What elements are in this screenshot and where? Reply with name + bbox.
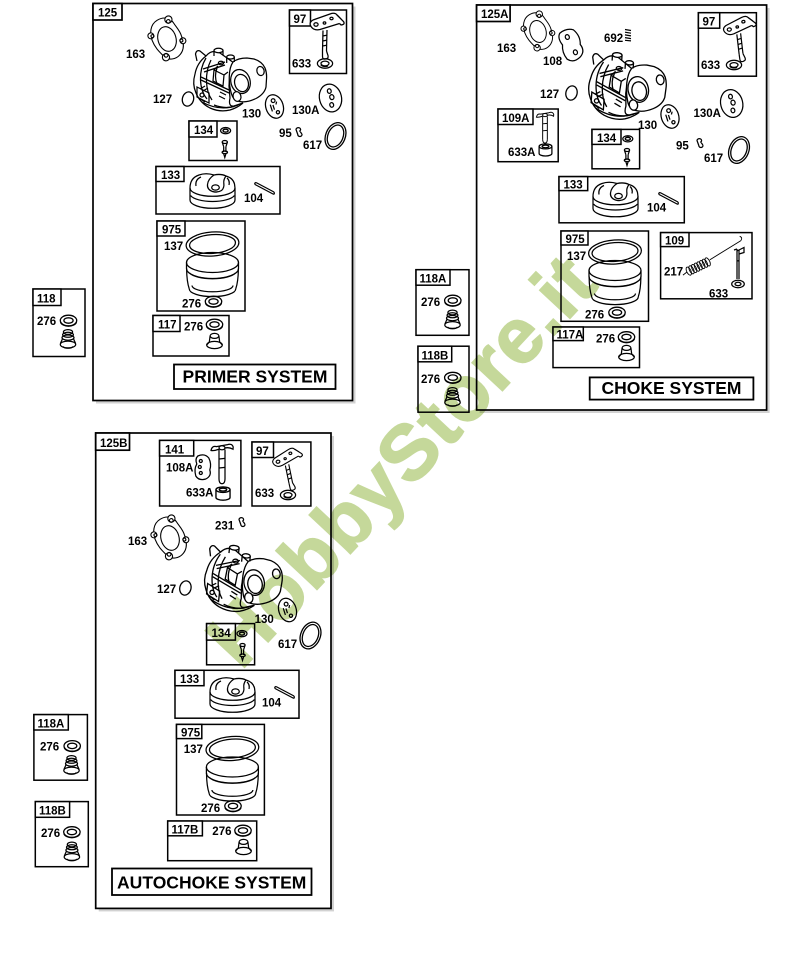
svg-text:276: 276: [596, 334, 615, 346]
svg-text:130: 130: [638, 120, 657, 132]
svg-text:276: 276: [37, 316, 56, 328]
svg-text:141: 141: [165, 444, 185, 456]
svg-text:276: 276: [212, 826, 231, 838]
svg-text:975: 975: [181, 727, 201, 739]
svg-text:633: 633: [709, 289, 728, 301]
svg-text:104: 104: [244, 193, 264, 205]
svg-text:117: 117: [158, 320, 177, 332]
svg-text:633: 633: [701, 60, 720, 72]
svg-text:118A: 118A: [420, 274, 447, 286]
svg-text:276: 276: [421, 297, 440, 309]
svg-text:217: 217: [664, 267, 683, 279]
svg-text:276: 276: [41, 828, 60, 840]
svg-text:AUTOCHOKE SYSTEM: AUTOCHOKE SYSTEM: [117, 873, 306, 893]
svg-text:97: 97: [703, 17, 716, 29]
svg-text:108: 108: [543, 56, 563, 68]
svg-text:95: 95: [676, 141, 689, 153]
svg-text:127: 127: [540, 89, 559, 101]
svg-text:130A: 130A: [694, 108, 722, 120]
svg-text:975: 975: [162, 225, 182, 237]
svg-text:127: 127: [153, 94, 172, 106]
svg-text:276: 276: [184, 322, 203, 334]
svg-text:633: 633: [292, 59, 311, 71]
svg-text:134: 134: [597, 133, 617, 145]
svg-text:276: 276: [201, 803, 220, 815]
svg-text:231: 231: [215, 521, 235, 533]
svg-text:692: 692: [604, 33, 623, 45]
svg-text:125: 125: [98, 8, 118, 20]
svg-text:97: 97: [256, 446, 269, 458]
svg-text:130: 130: [242, 109, 261, 121]
svg-text:117B: 117B: [172, 824, 199, 836]
svg-text:118: 118: [37, 294, 56, 306]
svg-text:137: 137: [164, 241, 183, 253]
svg-text:134: 134: [194, 125, 214, 137]
svg-text:617: 617: [303, 140, 322, 152]
svg-text:109A: 109A: [502, 113, 530, 125]
svg-text:118A: 118A: [38, 718, 65, 730]
svg-text:633A: 633A: [508, 147, 536, 159]
svg-text:127: 127: [157, 584, 176, 596]
svg-text:125B: 125B: [100, 438, 128, 450]
svg-text:109: 109: [665, 236, 684, 248]
svg-text:163: 163: [128, 536, 147, 548]
svg-text:PRIMER SYSTEM: PRIMER SYSTEM: [183, 367, 328, 387]
svg-text:617: 617: [704, 153, 723, 165]
svg-text:163: 163: [126, 49, 145, 61]
svg-text:95: 95: [279, 128, 292, 140]
svg-text:633: 633: [255, 488, 274, 500]
svg-text:163: 163: [497, 43, 516, 55]
svg-text:130A: 130A: [292, 105, 320, 117]
svg-text:125A: 125A: [481, 9, 509, 21]
svg-text:118B: 118B: [39, 806, 66, 818]
svg-text:133: 133: [564, 180, 583, 192]
svg-text:633A: 633A: [186, 488, 214, 500]
svg-text:133: 133: [161, 170, 180, 182]
svg-text:CHOKE SYSTEM: CHOKE SYSTEM: [601, 378, 741, 398]
svg-text:97: 97: [294, 14, 307, 26]
svg-text:133: 133: [180, 674, 199, 686]
svg-text:276: 276: [182, 299, 201, 311]
svg-text:104: 104: [647, 203, 667, 215]
svg-text:104: 104: [262, 698, 282, 710]
svg-text:276: 276: [40, 742, 59, 754]
svg-text:108A: 108A: [166, 463, 194, 475]
svg-text:975: 975: [566, 234, 586, 246]
svg-text:137: 137: [184, 744, 203, 756]
